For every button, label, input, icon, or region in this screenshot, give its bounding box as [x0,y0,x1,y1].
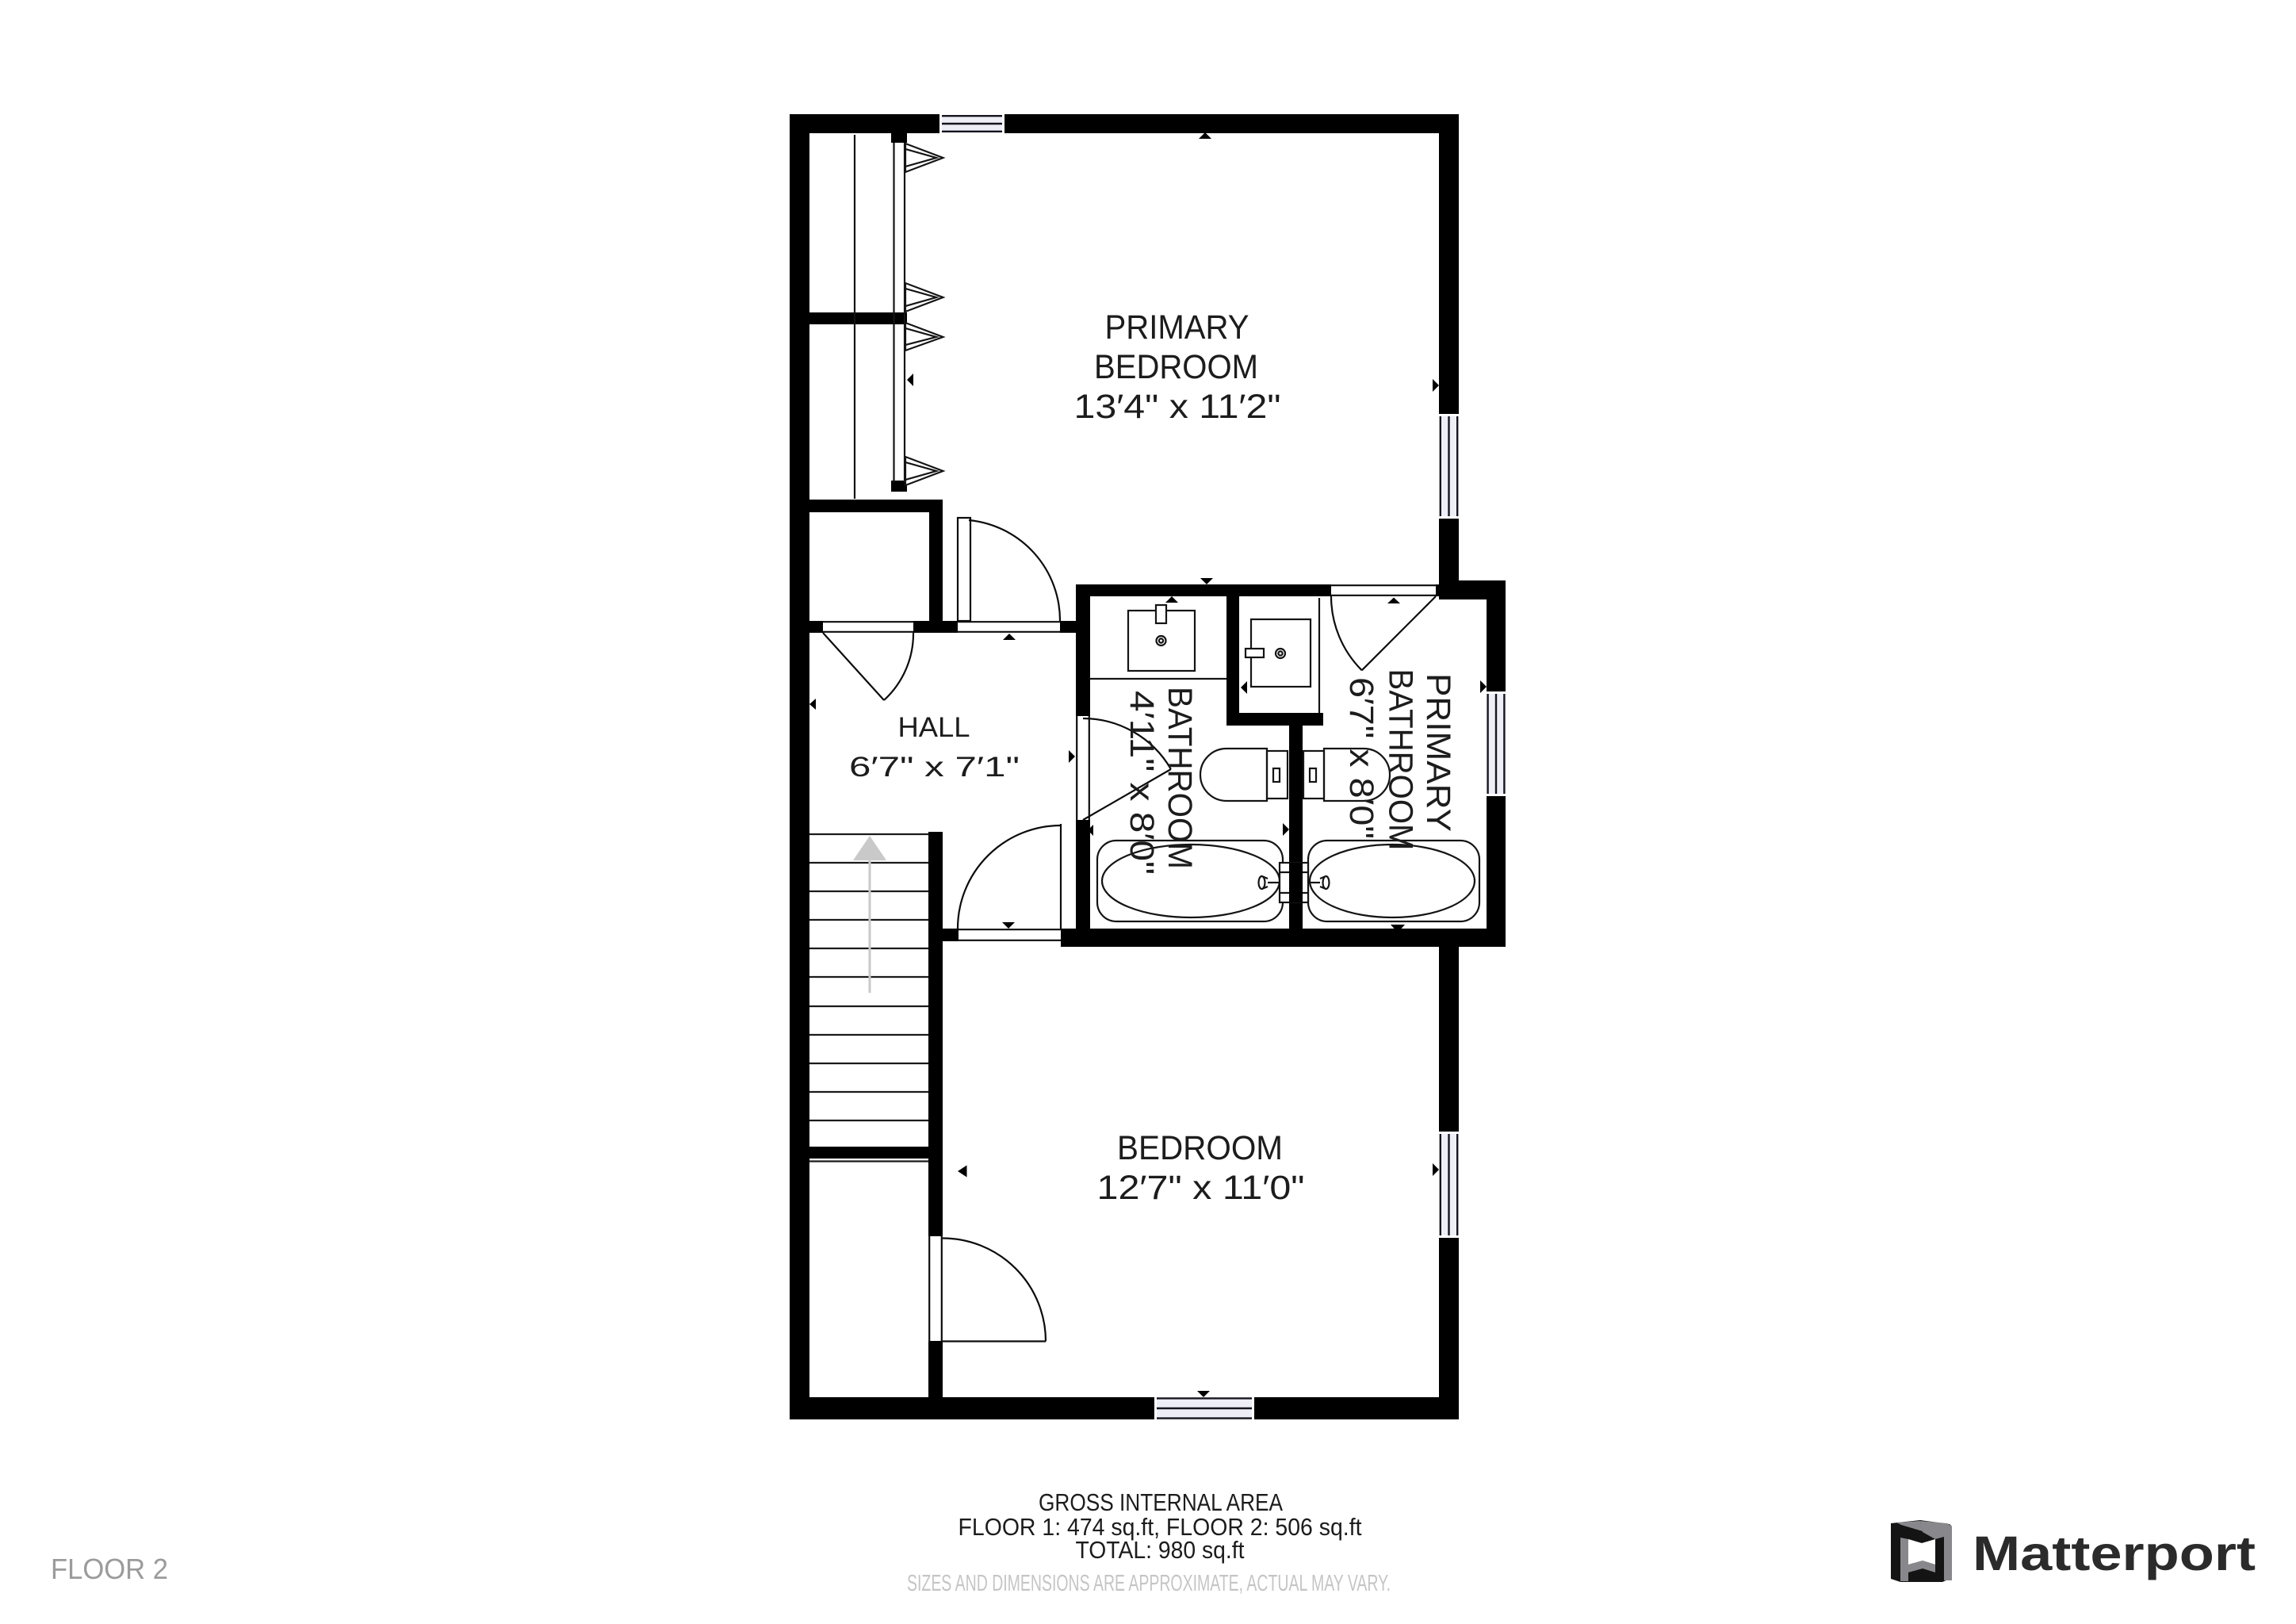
svg-text:PRIMARY: PRIMARY [1419,673,1457,832]
svg-text:6′7" x 7′1": 6′7" x 7′1" [849,752,1020,783]
svg-text:BEDROOM: BEDROOM [1117,1129,1283,1167]
svg-text:FLOOR 2: FLOOR 2 [51,1553,168,1585]
svg-text:BATHROOM: BATHROOM [1382,669,1420,851]
svg-text:PRIMARY: PRIMARY [1105,308,1249,347]
svg-text:6′7" x 8′0": 6′7" x 8′0" [1342,677,1380,839]
svg-text:12′7" x 11′0": 12′7" x 11′0" [1097,1169,1305,1207]
svg-text:4′11" x 8′0": 4′11" x 8′0" [1123,691,1161,875]
svg-text:SIZES AND DIMENSIONS ARE APPRO: SIZES AND DIMENSIONS ARE APPROXIMATE, AC… [907,1571,1391,1596]
svg-text:GROSS INTERNAL AREA: GROSS INTERNAL AREA [1039,1488,1283,1516]
svg-text:BATHROOM: BATHROOM [1161,687,1199,869]
svg-text:HALL: HALL [898,712,970,743]
svg-text:BEDROOM: BEDROOM [1094,348,1258,386]
svg-text:13′4" x 11′2": 13′4" x 11′2" [1074,388,1281,426]
svg-text:Matterport: Matterport [1973,1526,2256,1580]
svg-text:TOTAL: 980 sq.ft: TOTAL: 980 sq.ft [1076,1536,1245,1564]
